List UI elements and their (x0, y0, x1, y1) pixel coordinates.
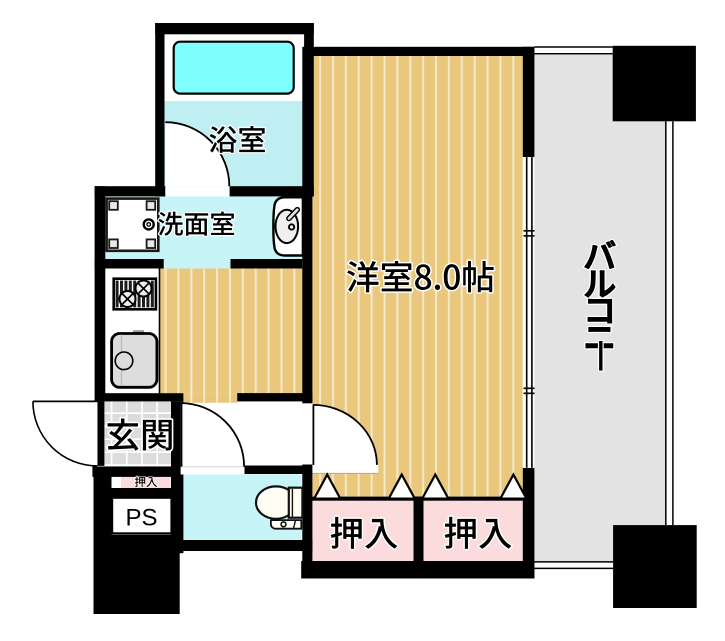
svg-text:PS: PS (125, 505, 157, 532)
